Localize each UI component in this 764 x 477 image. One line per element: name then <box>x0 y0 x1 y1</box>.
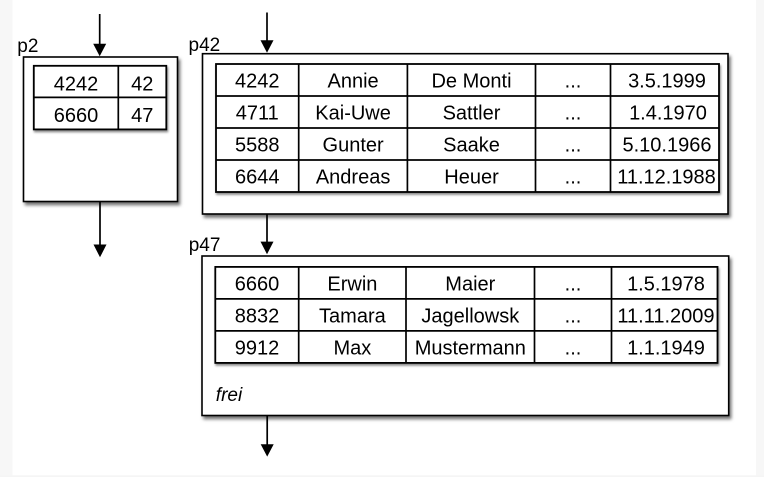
svg-text:Maier: Maier <box>445 274 495 296</box>
svg-text:4242: 4242 <box>235 71 280 93</box>
svg-text:Erwin: Erwin <box>327 274 377 296</box>
svg-text:...: ... <box>565 103 582 125</box>
svg-text:Heuer: Heuer <box>444 167 499 189</box>
svg-text:9912: 9912 <box>235 338 280 360</box>
svg-text:6660: 6660 <box>235 274 280 296</box>
svg-text:4711: 4711 <box>236 103 279 125</box>
svg-text:...: ... <box>565 135 582 157</box>
svg-text:...: ... <box>565 167 582 189</box>
svg-text:1.5.1978: 1.5.1978 <box>627 274 705 296</box>
svg-text:6644: 6644 <box>235 167 280 189</box>
svg-text:...: ... <box>565 71 582 93</box>
svg-text:Annie: Annie <box>328 71 379 93</box>
svg-text:Saake: Saake <box>443 135 500 157</box>
svg-text:...: ... <box>565 306 582 328</box>
svg-text:4242: 4242 <box>54 74 99 96</box>
svg-text:5.10.1966: 5.10.1966 <box>623 135 712 157</box>
svg-text:1.1.1949: 1.1.1949 <box>627 338 705 360</box>
svg-text:Sattler: Sattler <box>443 103 501 125</box>
svg-text:Andreas: Andreas <box>316 167 391 189</box>
svg-text:Gunter: Gunter <box>323 135 384 157</box>
svg-text:...: ... <box>565 274 582 296</box>
svg-text:p2: p2 <box>17 36 38 57</box>
svg-text:11.12.1988: 11.12.1988 <box>617 167 716 189</box>
svg-text:Mustermann: Mustermann <box>415 338 526 360</box>
svg-text:5588: 5588 <box>235 135 280 157</box>
svg-text:3.5.1999: 3.5.1999 <box>628 71 706 93</box>
svg-text:8832: 8832 <box>235 306 280 328</box>
svg-text:frei: frei <box>216 385 243 406</box>
svg-text:De Monti: De Monti <box>431 71 511 93</box>
svg-text:Kai-Uwe: Kai-Uwe <box>315 103 391 125</box>
svg-text:Tamara: Tamara <box>319 306 387 328</box>
svg-text:6660: 6660 <box>54 105 99 127</box>
svg-text:11.11.2009: 11.11.2009 <box>617 306 714 328</box>
svg-text:1.4.1970: 1.4.1970 <box>629 103 707 125</box>
svg-text:...: ... <box>565 338 582 360</box>
svg-text:42: 42 <box>131 74 153 96</box>
svg-text:p47: p47 <box>189 235 221 256</box>
svg-text:47: 47 <box>131 105 153 127</box>
svg-text:Max: Max <box>334 338 372 360</box>
svg-text:Jagellowsk: Jagellowsk <box>421 306 520 328</box>
